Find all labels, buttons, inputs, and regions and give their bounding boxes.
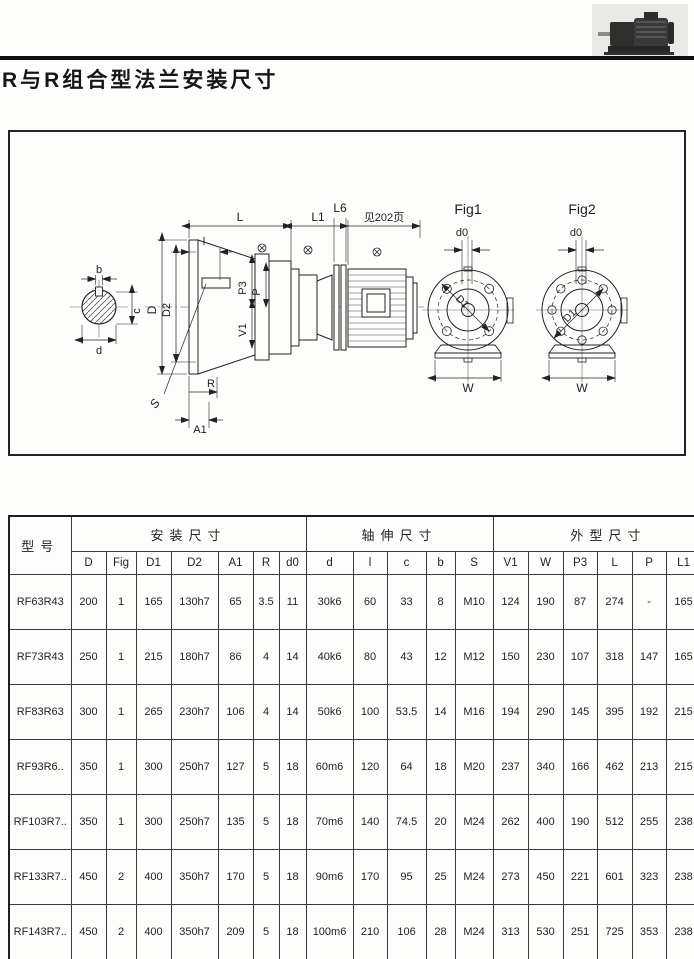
table-cell: 251: [563, 905, 597, 959]
table-cell: 300: [136, 795, 171, 850]
gearmotor-photo: [592, 4, 688, 60]
table-cell: 127: [218, 740, 253, 795]
table-cell: 86: [218, 630, 253, 685]
table-cell: 238: [666, 850, 694, 905]
gearmotor-illustration: [592, 4, 688, 60]
col-d: d: [306, 552, 353, 575]
table-cell: 60m6: [306, 740, 353, 795]
table-cell: 5: [253, 795, 279, 850]
table-cell: 350: [71, 795, 106, 850]
fig2-D1-label: D1: [561, 307, 579, 325]
fig1-flange-view: [422, 236, 514, 382]
table-cell: 238: [666, 795, 694, 850]
group-shaft-dims: 轴伸尺寸: [306, 516, 493, 552]
table-cell: 11: [279, 575, 306, 630]
table-cell: M24: [455, 850, 493, 905]
model-cell: RF63R43: [9, 575, 71, 630]
table-cell: 273: [493, 850, 528, 905]
col-V1: V1: [493, 552, 528, 575]
table-cell: 18: [279, 795, 306, 850]
table-cell: 395: [597, 685, 632, 740]
col-D1: D1: [136, 552, 171, 575]
table-cell: 450: [71, 850, 106, 905]
col-A1: A1: [218, 552, 253, 575]
table-cell: 30k6: [306, 575, 353, 630]
table-cell: -: [632, 575, 666, 630]
table-cell: 3.5: [253, 575, 279, 630]
table-cell: 140: [353, 795, 387, 850]
table-cell: 14: [426, 685, 455, 740]
table-row: RF83R63 300 1 265 230h7 106 4 14 50k6 10…: [9, 685, 694, 740]
table-cell: 150: [493, 630, 528, 685]
header-subcol-row: D Fig D1 D2 A1 R d0 d l c b S V1 W P3 L: [9, 552, 694, 575]
table-cell: 450: [71, 905, 106, 959]
table-cell: 512: [597, 795, 632, 850]
fig2-d0-label: d0: [570, 227, 582, 239]
table-cell: 107: [563, 630, 597, 685]
table-cell: 8: [426, 575, 455, 630]
table-cell: 274: [597, 575, 632, 630]
fig1-d0-label: d0: [456, 227, 468, 239]
dim-S-label: S: [147, 396, 163, 411]
table-cell: 1: [106, 795, 136, 850]
table-cell: 4: [253, 630, 279, 685]
table-cell: 65: [218, 575, 253, 630]
table-cell: 60: [353, 575, 387, 630]
table-cell: 221: [563, 850, 597, 905]
table-cell: 300: [136, 740, 171, 795]
table-cell: 290: [528, 685, 563, 740]
table-cell: 145: [563, 685, 597, 740]
col-S: S: [455, 552, 493, 575]
model-cell: RF93R6..: [9, 740, 71, 795]
table-cell: 265: [136, 685, 171, 740]
fig1-D1-label: D1: [453, 293, 471, 311]
table-cell: 90m6: [306, 850, 353, 905]
table-cell: 33: [387, 575, 426, 630]
table-cell: 135: [218, 795, 253, 850]
table-cell: 165: [136, 575, 171, 630]
table-cell: 40k6: [306, 630, 353, 685]
table-cell: 400: [136, 850, 171, 905]
table-cell: 130h7: [171, 575, 218, 630]
reducer-side-view: [146, 240, 424, 374]
model-column-header: 型号: [9, 516, 71, 575]
table-row: RF63R43 200 1 165 130h7 65 3.5 11 30k6 6…: [9, 575, 694, 630]
model-cell: RF133R7..: [9, 850, 71, 905]
group-outline-dims: 外型尺寸: [493, 516, 694, 552]
table-cell: 400: [136, 905, 171, 959]
dim-D-label: D: [145, 305, 159, 314]
table-cell: 323: [632, 850, 666, 905]
table-row: RF143R7.. 450 2 400 350h7 209 5 18 100m6…: [9, 905, 694, 959]
table-cell: 124: [493, 575, 528, 630]
table-cell: 74.5: [387, 795, 426, 850]
table-cell: 165: [666, 630, 694, 685]
table-cell: 200: [71, 575, 106, 630]
table-row: RF73R43 250 1 215 180h7 86 4 14 40k6 80 …: [9, 630, 694, 685]
dimension-table: 型号 安装尺寸 轴伸尺寸 外型尺寸 D Fig D1 D2 A1 R d0 d …: [8, 515, 694, 959]
group-install-dims: 安装尺寸: [71, 516, 306, 552]
fig1-W-label: W: [462, 381, 474, 395]
table-cell: 14: [279, 685, 306, 740]
table-cell: 215: [666, 685, 694, 740]
see-page-202-note: 见202页: [364, 212, 404, 224]
table-cell: 4: [253, 685, 279, 740]
table-cell: M20: [455, 740, 493, 795]
table-cell: 106: [218, 685, 253, 740]
table-cell: 1: [106, 575, 136, 630]
table-cell: 170: [218, 850, 253, 905]
table-cell: 1: [106, 630, 136, 685]
table-cell: 64: [387, 740, 426, 795]
table-cell: 213: [632, 740, 666, 795]
table-cell: 262: [493, 795, 528, 850]
table-cell: 2: [106, 850, 136, 905]
table-cell: 238: [666, 905, 694, 959]
page-title: R与R组合型法兰安装尺寸: [2, 64, 278, 94]
table-cell: 1: [106, 740, 136, 795]
dimension-table-wrapper: 型号 安装尺寸 轴伸尺寸 外型尺寸 D Fig D1 D2 A1 R d0 d …: [8, 515, 686, 959]
table-row: RF103R7.. 350 1 300 250h7 135 5 18 70m6 …: [9, 795, 694, 850]
dim-P-label: P: [251, 288, 263, 295]
table-cell: 43: [387, 630, 426, 685]
table-cell: 215: [666, 740, 694, 795]
dim-A1-label: A1: [193, 424, 206, 436]
table-cell: 5: [253, 740, 279, 795]
dim-c-label: c: [131, 308, 143, 314]
fig1-title: Fig1: [454, 201, 481, 217]
dim-R-label: R: [207, 378, 215, 390]
table-cell: M24: [455, 795, 493, 850]
table-cell: 5: [253, 905, 279, 959]
dim-l-label: l: [203, 236, 205, 248]
table-cell: M24: [455, 905, 493, 959]
dim-L6-label: L6: [333, 201, 347, 215]
table-cell: 350h7: [171, 850, 218, 905]
table-cell: 192: [632, 685, 666, 740]
table-cell: 80: [353, 630, 387, 685]
table-cell: 194: [493, 685, 528, 740]
table-cell: 255: [632, 795, 666, 850]
fig2-flange-view: [536, 236, 628, 382]
model-cell: RF73R43: [9, 630, 71, 685]
col-d0: d0: [279, 552, 306, 575]
table-cell: 313: [493, 905, 528, 959]
col-R: R: [253, 552, 279, 575]
dim-D2-label: D2: [161, 303, 173, 317]
table-cell: 209: [218, 905, 253, 959]
table-cell: 100: [353, 685, 387, 740]
table-cell: 190: [528, 575, 563, 630]
table-cell: 237: [493, 740, 528, 795]
table-cell: 210: [353, 905, 387, 959]
table-cell: 120: [353, 740, 387, 795]
table-cell: 12: [426, 630, 455, 685]
model-cell: RF83R63: [9, 685, 71, 740]
fig2-title: Fig2: [568, 201, 595, 217]
table-cell: 18: [279, 850, 306, 905]
table-cell: 190: [563, 795, 597, 850]
col-P: P: [632, 552, 666, 575]
table-cell: 165: [666, 575, 694, 630]
table-cell: 20: [426, 795, 455, 850]
catalog-page: R与R组合型法兰安装尺寸: [0, 0, 694, 959]
dim-L-label: L: [237, 210, 244, 224]
col-W: W: [528, 552, 563, 575]
table-cell: 353: [632, 905, 666, 959]
dim-P3-label: P3: [237, 281, 249, 294]
col-Fig: Fig: [106, 552, 136, 575]
table-cell: 318: [597, 630, 632, 685]
table-cell: 215: [136, 630, 171, 685]
table-cell: M10: [455, 575, 493, 630]
dim-d-label: d: [96, 345, 102, 357]
shaft-cross-section: [70, 275, 138, 344]
table-cell: 25: [426, 850, 455, 905]
table-cell: 50k6: [306, 685, 353, 740]
table-cell: 462: [597, 740, 632, 795]
table-cell: 230: [528, 630, 563, 685]
table-cell: 601: [597, 850, 632, 905]
table-cell: 18: [279, 905, 306, 959]
table-cell: 28: [426, 905, 455, 959]
table-cell: 340: [528, 740, 563, 795]
technical-drawing-box: b c d: [8, 130, 686, 456]
table-cell: 18: [279, 740, 306, 795]
table-row: RF133R7.. 450 2 400 350h7 170 5 18 90m6 …: [9, 850, 694, 905]
table-cell: 147: [632, 630, 666, 685]
table-cell: 87: [563, 575, 597, 630]
table-cell: 106: [387, 905, 426, 959]
dim-b-label: b: [96, 264, 102, 276]
dim-L1-label: L1: [311, 210, 325, 224]
table-cell: 5: [253, 850, 279, 905]
table-cell: 53.5: [387, 685, 426, 740]
table-cell: 250h7: [171, 740, 218, 795]
table-cell: 14: [279, 630, 306, 685]
col-P3: P3: [563, 552, 597, 575]
table-cell: 400: [528, 795, 563, 850]
table-cell: 70m6: [306, 795, 353, 850]
table-cell: 450: [528, 850, 563, 905]
table-cell: 18: [426, 740, 455, 795]
title-rule: [0, 56, 694, 60]
col-D: D: [71, 552, 106, 575]
table-cell: 100m6: [306, 905, 353, 959]
table-cell: 230h7: [171, 685, 218, 740]
model-cell: RF143R7..: [9, 905, 71, 959]
table-cell: 250: [71, 630, 106, 685]
table-cell: 350h7: [171, 905, 218, 959]
table-cell: 250h7: [171, 795, 218, 850]
table-cell: 95: [387, 850, 426, 905]
fig2-W-label: W: [576, 381, 588, 395]
table-cell: 170: [353, 850, 387, 905]
table-cell: 725: [597, 905, 632, 959]
col-l: l: [353, 552, 387, 575]
model-cell: RF103R7..: [9, 795, 71, 850]
col-b: b: [426, 552, 455, 575]
table-cell: 2: [106, 905, 136, 959]
table-cell: 166: [563, 740, 597, 795]
table-cell: M16: [455, 685, 493, 740]
table-cell: 530: [528, 905, 563, 959]
table-cell: 350: [71, 740, 106, 795]
col-c: c: [387, 552, 426, 575]
table-cell: 1: [106, 685, 136, 740]
col-D2: D2: [171, 552, 218, 575]
table-row: RF93R6.. 350 1 300 250h7 127 5 18 60m6 1…: [9, 740, 694, 795]
header-group-row: 型号 安装尺寸 轴伸尺寸 外型尺寸: [9, 516, 694, 552]
table-cell: M12: [455, 630, 493, 685]
dim-V1-label: V1: [237, 323, 249, 336]
table-cell: 300: [71, 685, 106, 740]
col-L1: L1: [666, 552, 694, 575]
table-cell: 180h7: [171, 630, 218, 685]
dimension-drawing: b c d: [10, 132, 684, 454]
col-L: L: [597, 552, 632, 575]
